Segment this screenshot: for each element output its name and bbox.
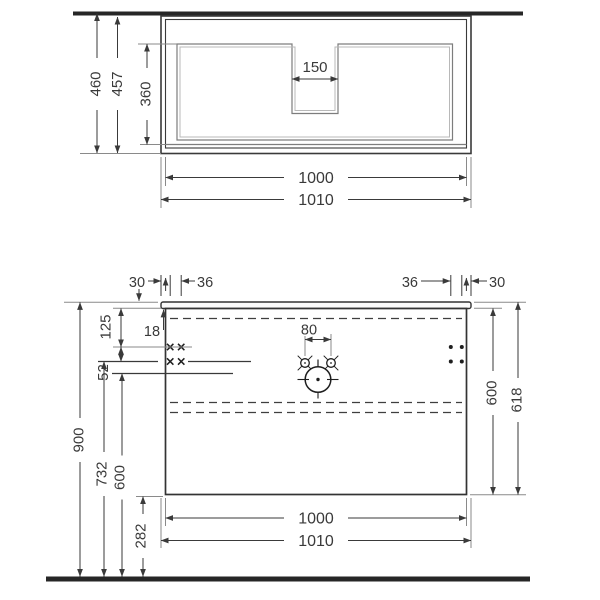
dim-label-30-left: 30 bbox=[129, 275, 145, 291]
dim-label-457-group: 457 bbox=[109, 58, 126, 110]
dim-label-618: 618 bbox=[509, 387, 526, 412]
dim-label-457: 457 bbox=[109, 71, 126, 96]
dim-label-1010-front: 1010 bbox=[298, 533, 334, 550]
dim-label-600-outlet: 600 bbox=[112, 465, 129, 490]
front-view: 30 36 36 30 18 125 bbox=[46, 275, 530, 582]
technical-drawing-page: 460 457 360 150 1000 1010 bbox=[0, 0, 600, 600]
dim-label-36-right: 36 bbox=[402, 275, 418, 291]
dim-label-600-height: 600 bbox=[484, 380, 501, 405]
dim-label-900: 900 bbox=[71, 427, 88, 452]
dim-label-150: 150 bbox=[302, 59, 327, 76]
dim-label-282: 282 bbox=[133, 523, 150, 548]
dim-label-1010-plan: 1010 bbox=[298, 192, 334, 209]
dim-label-80: 80 bbox=[301, 323, 317, 339]
dim-label-36-left: 36 bbox=[197, 275, 213, 291]
worktop-front bbox=[161, 302, 471, 309]
dim-label-460: 460 bbox=[87, 71, 104, 96]
dim-label-30-right: 30 bbox=[489, 275, 505, 291]
dim-label-732: 732 bbox=[94, 461, 111, 486]
dim-label-125: 125 bbox=[98, 314, 115, 339]
plan-view: 460 457 360 150 1000 1010 bbox=[73, 12, 523, 210]
dim-label-18: 18 bbox=[144, 324, 160, 340]
dim-label-360-group: 360 bbox=[137, 68, 154, 120]
dim-label-460-group: 460 bbox=[87, 58, 104, 110]
hole-offset-dims-right: 36 30 bbox=[402, 275, 505, 296]
worktop-outline-plan bbox=[161, 16, 471, 154]
hole-offset-dims-left: 30 36 bbox=[129, 275, 213, 296]
floor-line bbox=[46, 577, 530, 582]
drawing-canvas: 460 457 360 150 1000 1010 bbox=[0, 0, 600, 600]
dim-label-1000-front: 1000 bbox=[298, 511, 334, 528]
wall-section bbox=[73, 12, 523, 16]
dim-label-360: 360 bbox=[137, 81, 154, 106]
dim-label-1000-plan: 1000 bbox=[298, 170, 334, 187]
